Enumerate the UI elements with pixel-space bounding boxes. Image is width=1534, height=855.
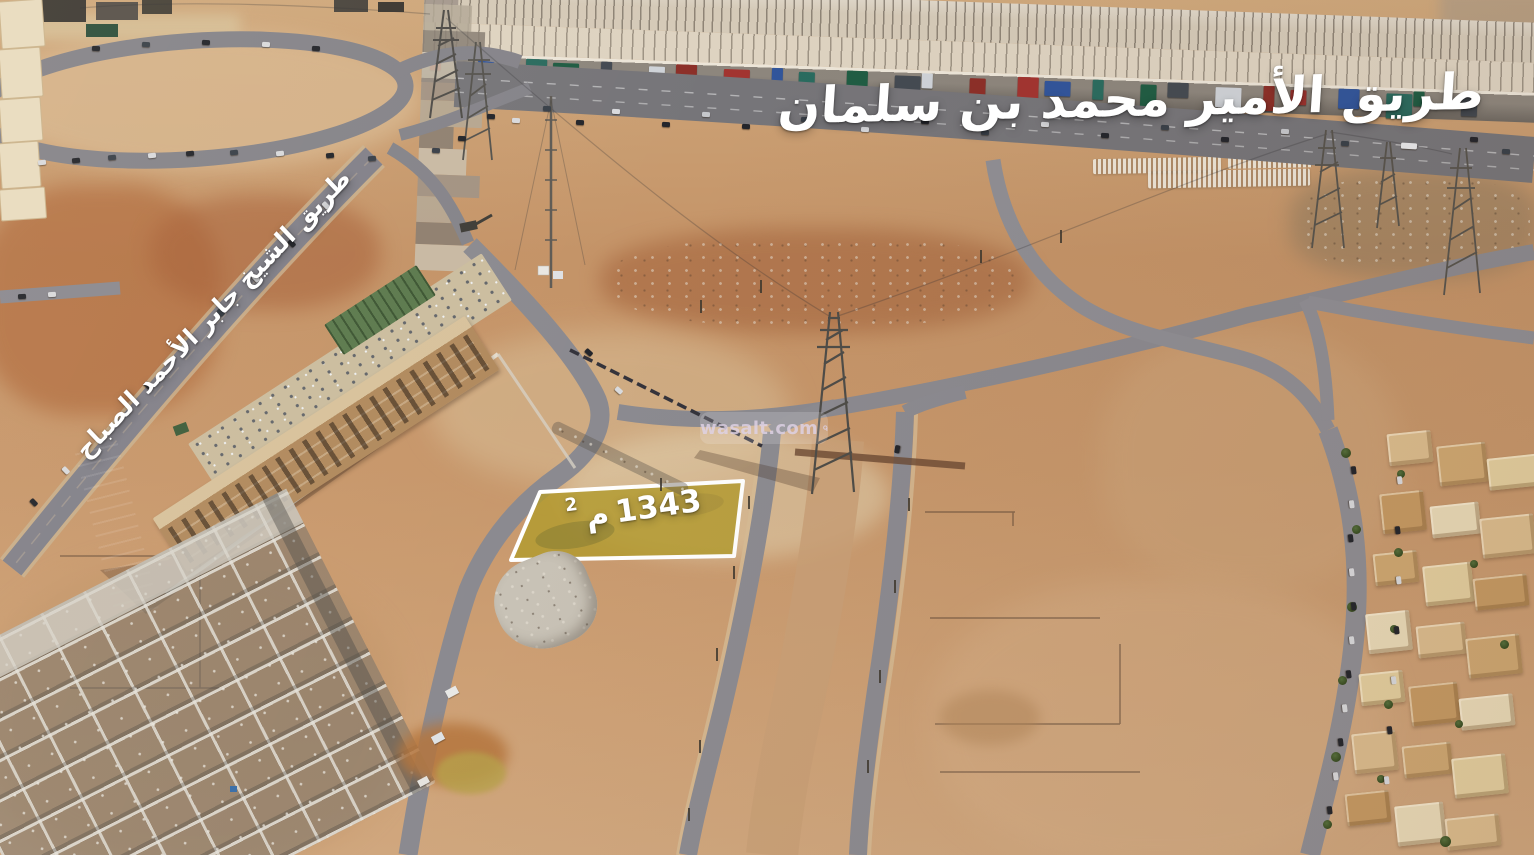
light-pole	[867, 760, 869, 773]
light-pole	[894, 580, 896, 593]
plot-area-exponent: 2	[564, 494, 579, 517]
light-pole	[733, 566, 735, 579]
light-pole	[699, 740, 701, 753]
watermark-text: wasalt.com	[700, 418, 818, 439]
light-pole	[760, 280, 762, 293]
light-pole	[980, 250, 982, 263]
light-pole	[908, 498, 910, 511]
light-pole	[688, 808, 690, 821]
light-pole	[700, 300, 702, 313]
light-pole	[716, 648, 718, 661]
light-pole	[879, 670, 881, 683]
light-pole	[1060, 230, 1062, 243]
plot-area-unit: م	[584, 496, 612, 535]
map-pin-icon	[823, 420, 828, 437]
light-pole	[748, 496, 750, 509]
aerial-photo: طريق الأمير محمد بن سلمان طريق الشيخ جاب…	[0, 0, 1534, 855]
watermark: wasalt.com	[700, 412, 828, 444]
